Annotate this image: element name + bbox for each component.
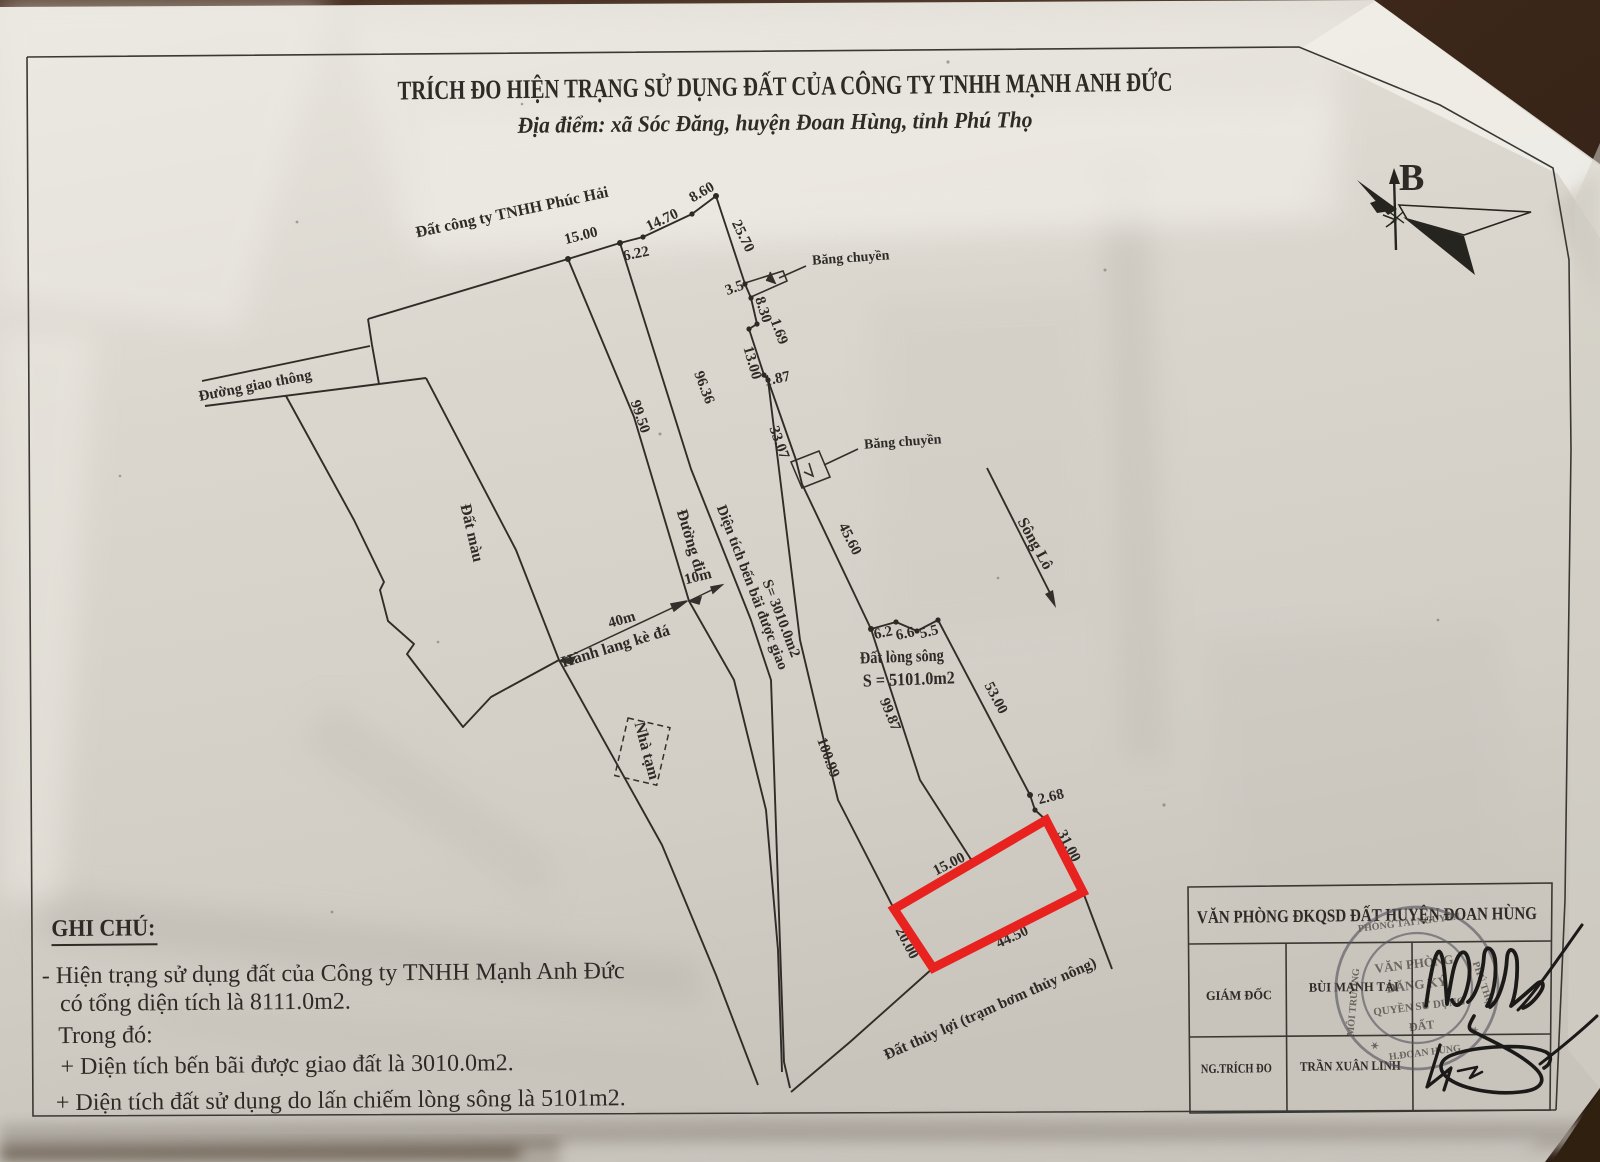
svg-text:có tổng diện tích là 8111.0m2.: có tổng diện tích là 8111.0m2. — [60, 989, 351, 1018]
svg-text:GHI CHÚ:: GHI CHÚ: — [51, 915, 155, 942]
svg-text:- Hiện trạng sử dụng đất của C: - Hiện trạng sử dụng đất của Công ty TNH… — [42, 958, 625, 989]
svg-text:Đất lòng sông: Đất lòng sông — [860, 646, 945, 668]
svg-text:Trong đó:: Trong đó: — [58, 1022, 153, 1049]
svg-text:B: B — [1399, 157, 1424, 199]
svg-text:NG.TRÍCH ĐO: NG.TRÍCH ĐO — [1201, 1060, 1272, 1076]
svg-text:+ Diện tích bến bãi được giao: + Diện tích bến bãi được giao đất là 301… — [60, 1050, 513, 1080]
svg-text:TRẦN XUÂN LINH: TRẦN XUÂN LINH — [1300, 1058, 1401, 1074]
svg-text:S = 5101.0m2: S = 5101.0m2 — [862, 667, 955, 690]
svg-text:+ Diện tích đất sử dụng do lấn: + Diện tích đất sử dụng do lấn chiếm lòn… — [56, 1085, 626, 1116]
svg-text:GIÁM ĐỐC: GIÁM ĐỐC — [1206, 987, 1272, 1003]
svg-text:ĐẤT: ĐẤT — [1408, 1016, 1435, 1034]
